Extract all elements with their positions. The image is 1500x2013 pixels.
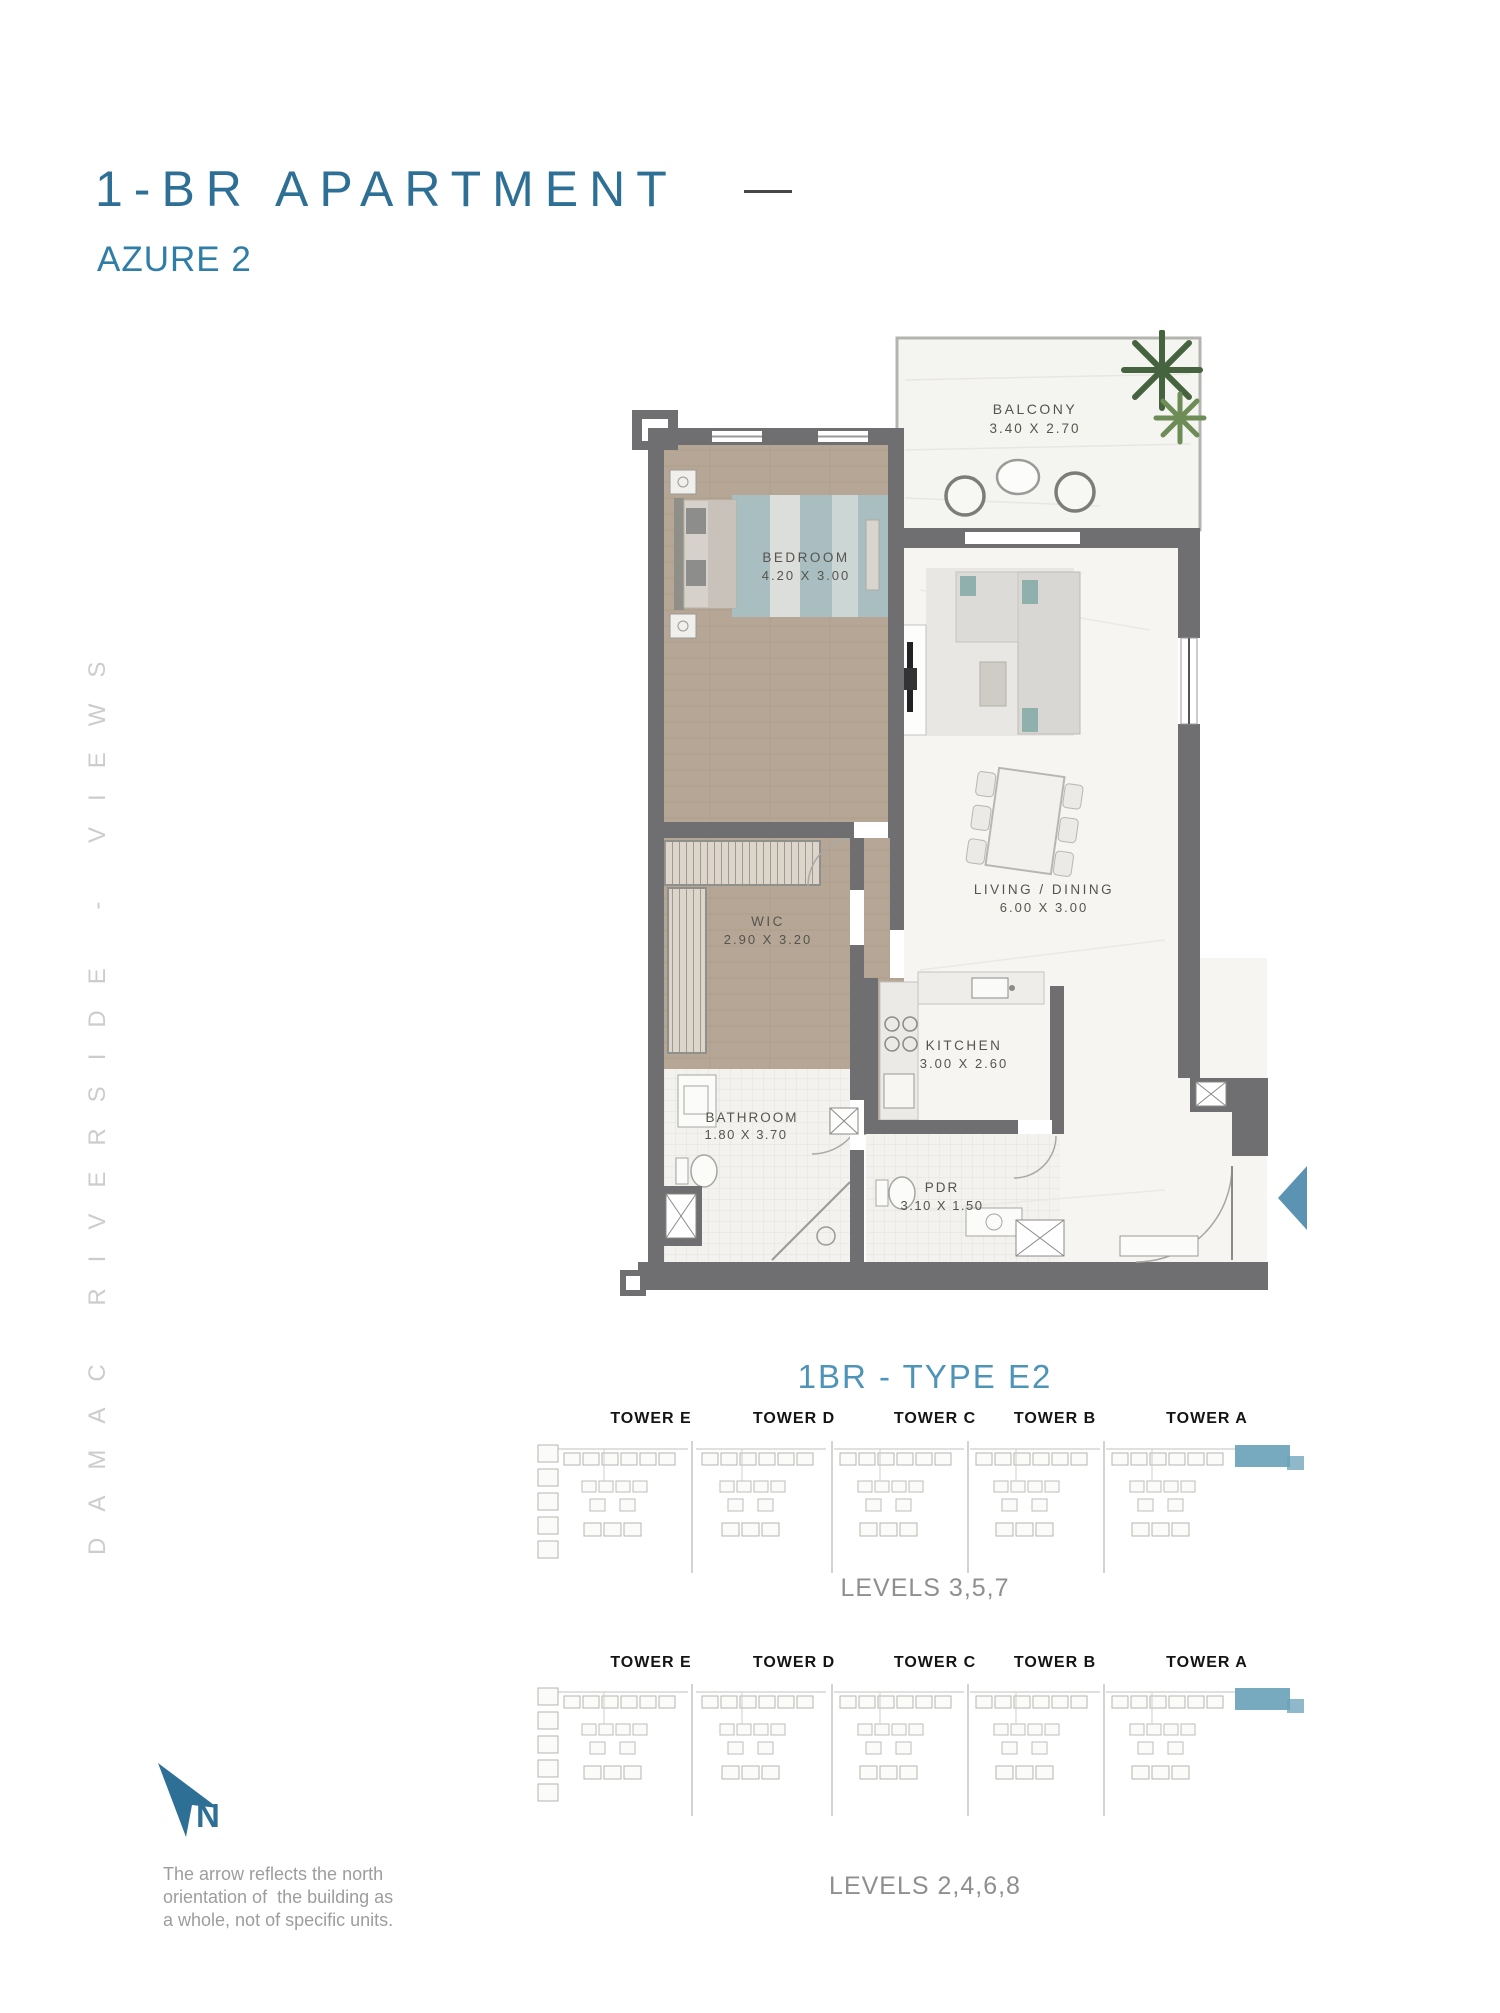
bedroom-bench xyxy=(866,520,879,590)
wic-dims: 2.90 X 3.20 xyxy=(724,932,813,947)
kitchen-dims: 3.00 X 2.60 xyxy=(920,1056,1009,1071)
bed-icon xyxy=(674,498,736,610)
balcony-dims: 3.40 X 2.70 xyxy=(989,421,1080,436)
wic-name: WIC xyxy=(751,914,785,929)
keyplan-unit-highlight xyxy=(1287,1699,1304,1713)
tower-label: TOWER A xyxy=(1166,1654,1248,1672)
living-name: LIVING / DINING xyxy=(974,882,1114,897)
tower-label: TOWER E xyxy=(610,1410,691,1428)
tower-labels-row-2: TOWER ETOWER DTOWER CTOWER BTOWER A xyxy=(530,1654,1320,1676)
floorplan-drawing: BALCONY 3.40 X 2.70 xyxy=(620,330,1320,1310)
pdr-dims: 3.10 X 1.50 xyxy=(901,1198,984,1213)
balcony-name: BALCONY xyxy=(993,401,1077,417)
entry-arrow-icon xyxy=(1278,1166,1307,1230)
balcony-table xyxy=(997,460,1039,494)
pdr-name: PDR xyxy=(925,1180,960,1195)
levels-label-2: LEVELS 2,4,6,8 xyxy=(530,1872,1320,1901)
unit-type-heading: 1BR - TYPE E2 xyxy=(530,1358,1320,1396)
balcony-chair xyxy=(946,477,984,515)
levels-label-1: LEVELS 3,5,7 xyxy=(530,1574,1320,1603)
bedroom-dims: 4.20 X 3.00 xyxy=(762,568,851,583)
bathroom-dims: 1.80 X 3.70 xyxy=(705,1127,788,1142)
tower-label: TOWER C xyxy=(894,1654,976,1672)
page-subtitle: AZURE 2 xyxy=(97,240,252,280)
keyplan-unit-highlight xyxy=(1287,1456,1304,1470)
keyplan-unit-highlight xyxy=(1235,1445,1290,1467)
living-dims: 6.00 X 3.00 xyxy=(1000,900,1089,915)
tower-label: TOWER D xyxy=(753,1410,835,1428)
tower-labels-row-1: TOWER ETOWER DTOWER CTOWER BTOWER A xyxy=(530,1410,1320,1432)
tower-label: TOWER D xyxy=(753,1654,835,1672)
keyplan-levels-357 xyxy=(530,1437,1320,1577)
page-title: 1-BR APARTMENT xyxy=(95,160,678,218)
bathroom-name: BATHROOM xyxy=(706,1110,799,1125)
side-watermark-text: DAMAC RIVERSIDE - VIEWS xyxy=(84,450,126,1740)
tower-label: TOWER A xyxy=(1166,1410,1248,1428)
keyplan-unit-highlight xyxy=(1235,1688,1290,1710)
tower-label: TOWER E xyxy=(610,1654,691,1672)
tower-label: TOWER B xyxy=(1014,1410,1096,1428)
balcony-zone: BALCONY 3.40 X 2.70 xyxy=(897,332,1204,530)
sofa-icon xyxy=(926,568,1080,736)
tower-label: TOWER C xyxy=(894,1410,976,1428)
entry-console xyxy=(1120,1236,1198,1256)
balcony-chair xyxy=(1056,473,1094,511)
keyplan-levels-2468 xyxy=(530,1680,1320,1820)
title-divider xyxy=(744,190,792,193)
north-note: The arrow reflects the north orientation… xyxy=(163,1863,443,1932)
toilet-icon xyxy=(691,1155,717,1187)
kitchen-name: KITCHEN xyxy=(926,1038,1003,1053)
north-label: N xyxy=(196,1797,220,1835)
brochure-page: 1-BR APARTMENT AZURE 2 DAMAC RIVERSIDE -… xyxy=(0,0,1500,2013)
bedroom-name: BEDROOM xyxy=(762,550,849,565)
tower-label: TOWER B xyxy=(1014,1654,1096,1672)
